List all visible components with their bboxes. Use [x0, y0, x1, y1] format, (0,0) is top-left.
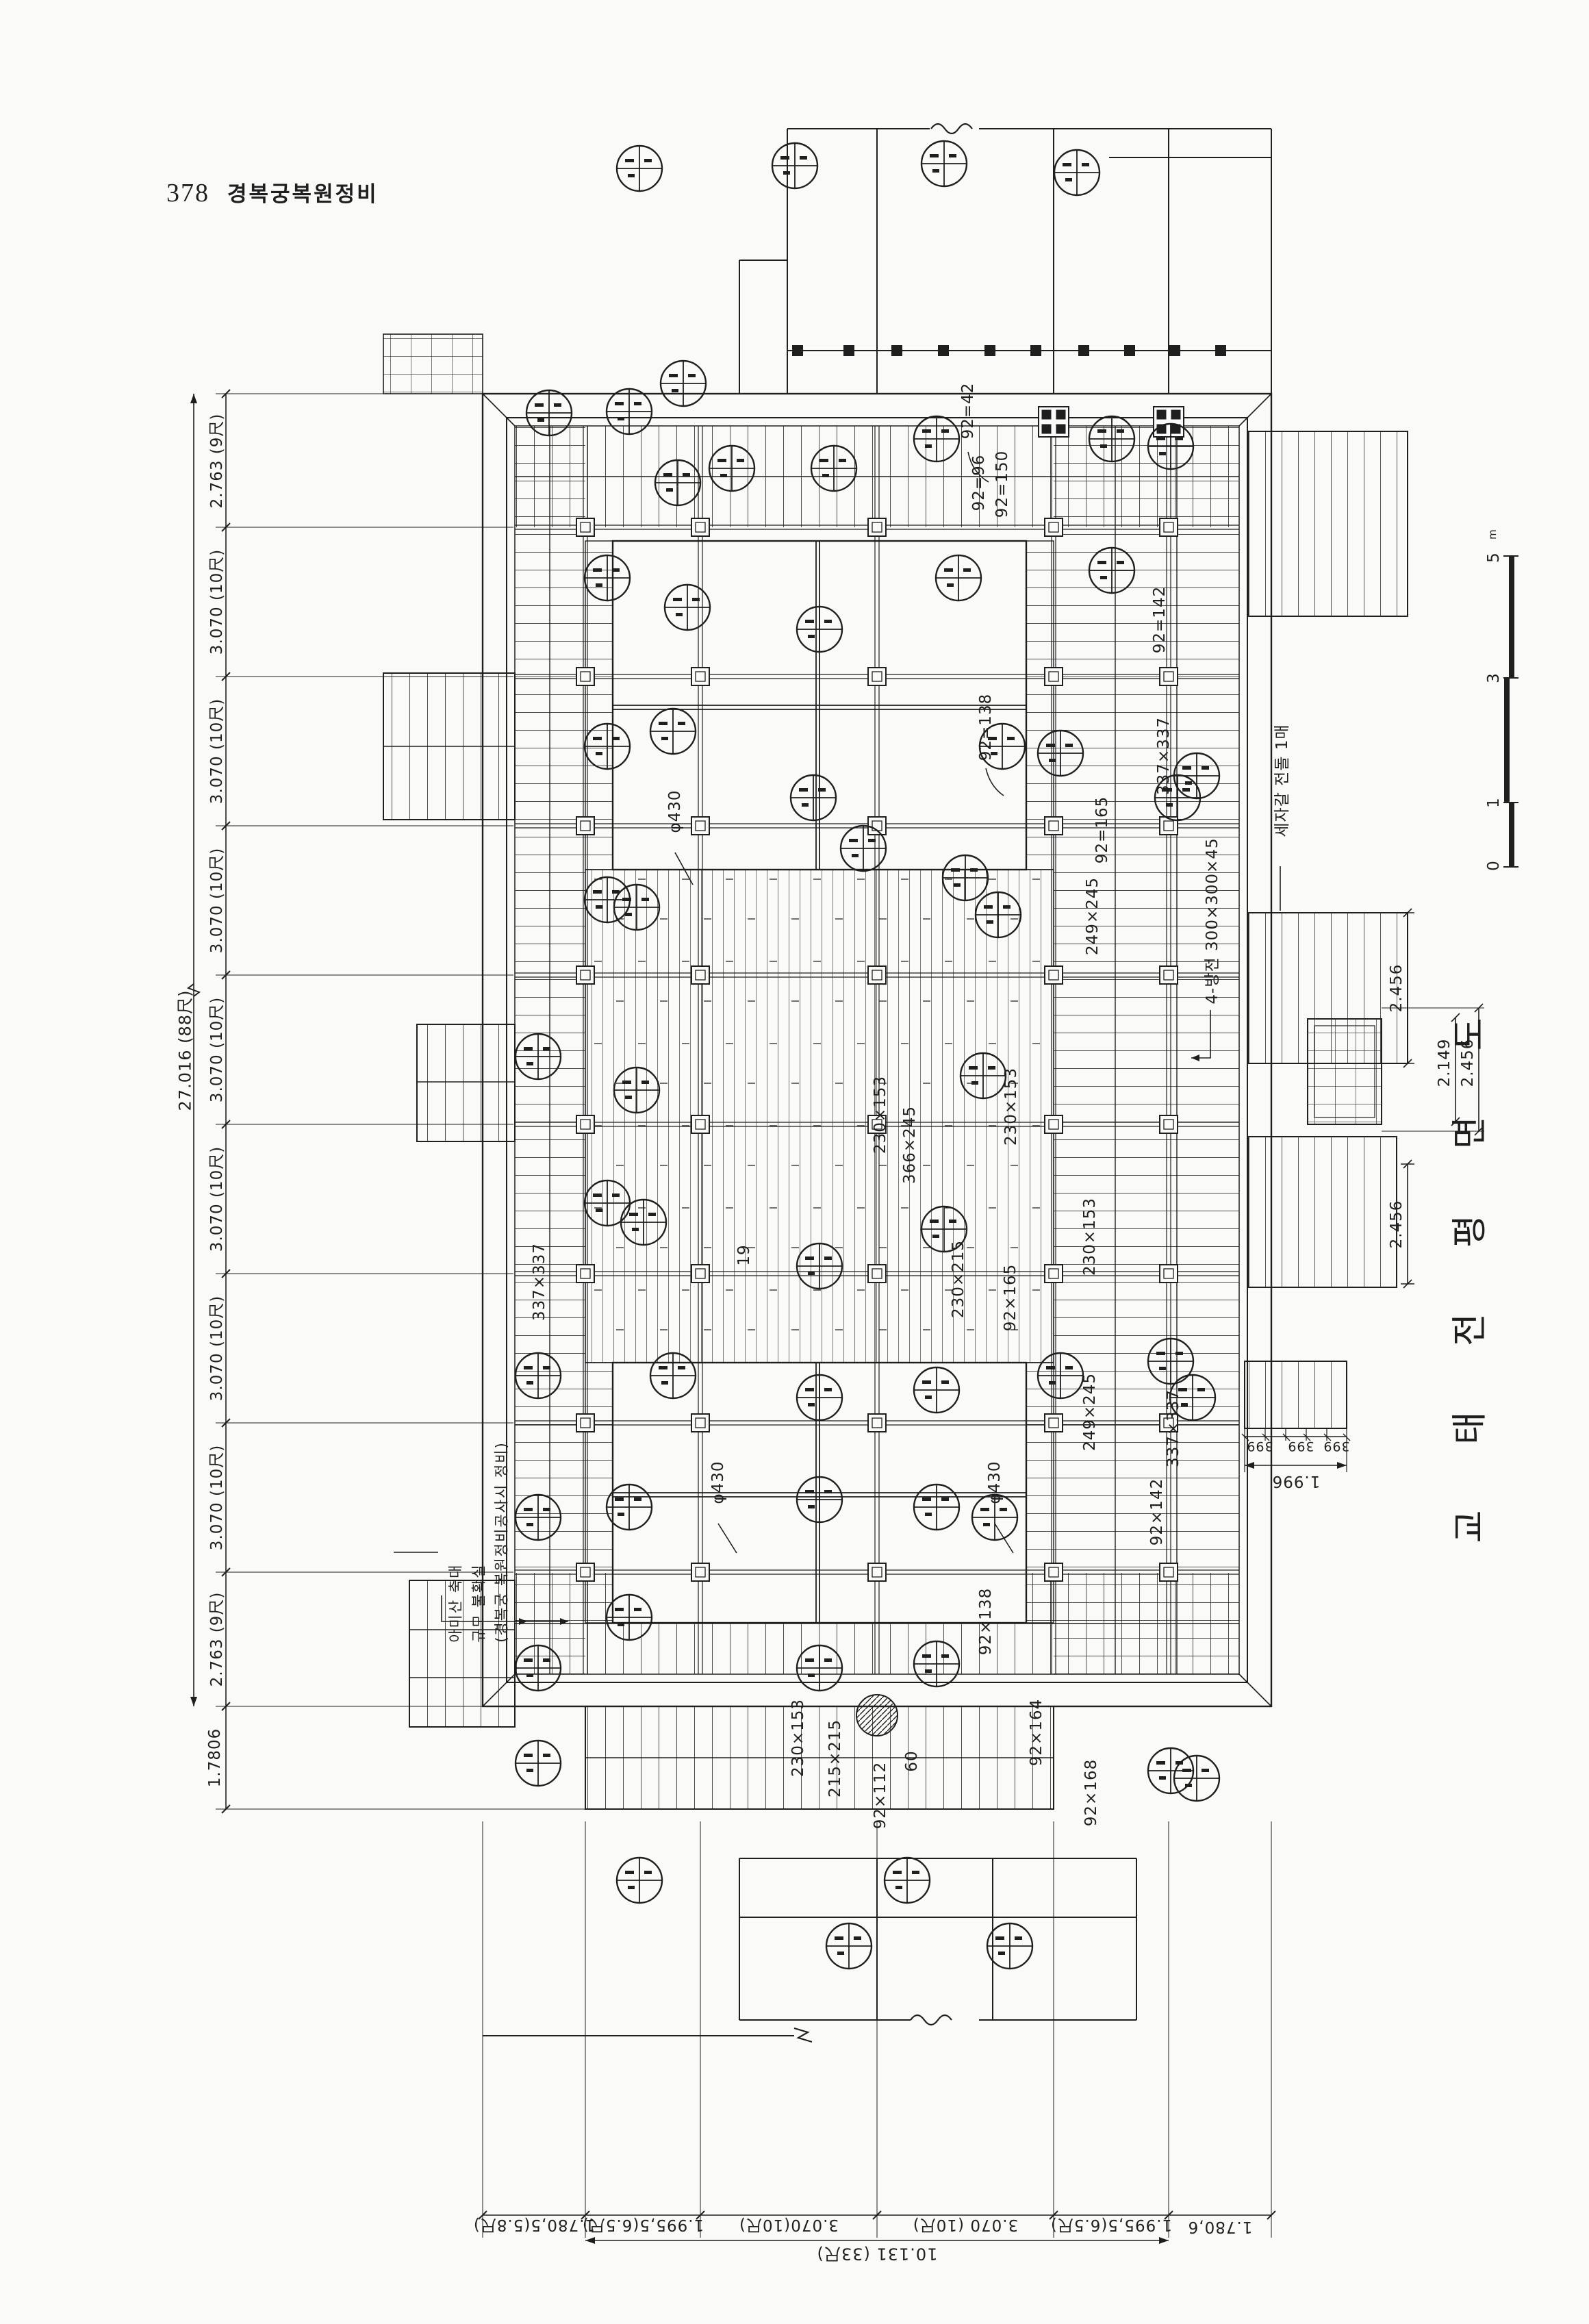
plan-annotation: 아미산 축대 규모 불확실 (경복궁 복원정비공사시 정비): [445, 1441, 514, 1643]
plan-label: 0: [1485, 860, 1503, 871]
grid-bubble: [791, 775, 836, 820]
grid-bubble: [811, 446, 856, 491]
plan-label: 1.7806: [206, 1728, 224, 1787]
grid-bubble: [617, 1858, 662, 1903]
plan-label: 3.070(10尺): [739, 2215, 839, 2238]
plan-label: φ430: [709, 1461, 727, 1504]
adjacent-structure-bottom: [483, 1858, 1136, 2042]
grid-bubble: [516, 1645, 561, 1691]
grid-bubble: [797, 607, 842, 652]
grid-bubble: [607, 1595, 652, 1640]
grid-bubble: [1054, 150, 1099, 195]
plan-label: 60: [903, 1750, 921, 1771]
grid-bubble: [797, 1375, 842, 1420]
grid-bubble: [914, 1641, 959, 1687]
grid-bubble: [1089, 416, 1134, 462]
grid-bubble: [585, 724, 630, 769]
plan-label: m: [1486, 529, 1499, 540]
scale-bar: [1503, 556, 1518, 867]
plan-label: 19: [735, 1244, 753, 1265]
plan-label: 399: [1246, 1439, 1273, 1454]
plan-label: 2.456: [1388, 964, 1406, 1013]
grid-bubble: [1089, 548, 1134, 593]
plan-label: 1.780,6: [1188, 2218, 1253, 2236]
grid-bubble: [1038, 1353, 1083, 1398]
plan-label: 366×245: [901, 1106, 919, 1184]
plan-label: 92=42: [959, 383, 977, 440]
grid-bubble: [914, 1367, 959, 1413]
grid-bubble: [1148, 424, 1193, 469]
break-wave-top: [931, 124, 972, 134]
plan-label: 5: [1485, 552, 1503, 563]
grid-bubble: [516, 1495, 561, 1540]
plan-label: 92=96: [970, 455, 988, 511]
plan-label: 10.131 (33尺): [817, 2244, 938, 2268]
plan-label: 230×153: [872, 1076, 889, 1154]
plan-label: φ430: [666, 790, 684, 833]
plan-label: φ430: [986, 1461, 1004, 1504]
plan-label: 92×168: [1082, 1759, 1100, 1826]
grid-bubble: [841, 826, 886, 871]
grid-bubble: [797, 1645, 842, 1691]
plan-label: 세자갈 전돌 1매: [1269, 724, 1292, 837]
plan-label: 230×215: [950, 1240, 967, 1318]
plan-label: 3.070 (10尺): [203, 549, 227, 655]
break-bolt: [794, 2028, 812, 2042]
plan-label: 92×142: [1148, 1478, 1166, 1545]
plan-label: 92=165: [1093, 796, 1111, 863]
grid-bubble: [709, 446, 754, 491]
plan-label: 92=138: [977, 694, 995, 761]
plan-label: 3.070 (10尺): [203, 1146, 227, 1252]
grid-bubble: [976, 892, 1021, 937]
scanned-book-page: 378 경복궁복원정비: [0, 0, 1589, 2324]
grid-bubble: [987, 1923, 1032, 1969]
grid-bubble: [655, 460, 700, 505]
plan-label: 3.070 (10尺): [913, 2215, 1018, 2238]
plan-label: 92×164: [1028, 1699, 1045, 1766]
plan-label: 249×245: [1084, 877, 1102, 955]
plan-label: 2.149: [1436, 1039, 1453, 1087]
floor-plan-drawing: [0, 0, 1589, 2324]
plan-label: 399: [1323, 1439, 1349, 1454]
grid-bubble: [621, 1200, 666, 1245]
grid-bubble: [614, 885, 659, 930]
plan-label: 1: [1485, 797, 1503, 808]
grid-bubble: [1174, 1756, 1219, 1801]
plan-label: 3: [1485, 672, 1503, 683]
plan-label: 230×153: [1002, 1068, 1020, 1146]
plan-label: 3.070 (10尺): [203, 848, 227, 953]
plan-label: 2.763 (9尺): [203, 1592, 227, 1687]
grid-bubble: [914, 416, 959, 462]
plan-label: 2.763 (9尺): [203, 413, 227, 508]
plan-label: 92×112: [872, 1762, 889, 1829]
plan-label: 92=150: [993, 451, 1011, 518]
break-wave-bottom: [911, 2015, 952, 2025]
plan-label: 92=142: [1151, 586, 1169, 653]
grid-bubble: [921, 141, 967, 186]
grid-bubble: [516, 1353, 561, 1398]
plan-label: 337×337: [1165, 1389, 1182, 1467]
grid-bubble: [1174, 753, 1219, 798]
grid-bubble: [526, 390, 572, 435]
grid-bubble: [826, 1923, 872, 1969]
grid-bubble: [1148, 1339, 1193, 1384]
grid-bubble: [650, 709, 696, 754]
grid-bubble: [617, 146, 662, 191]
plan-label: 1.996: [1272, 1472, 1321, 1490]
plan-label: 337×337: [1155, 717, 1173, 795]
plan-label: 3.070 (10尺): [203, 1445, 227, 1550]
annotation-line: (경복궁 복원정비공사시 정비): [491, 1441, 514, 1643]
plan-label: 92×138: [977, 1588, 995, 1655]
grid-bubble: [614, 1068, 659, 1113]
east-stairs: [1245, 431, 1408, 1428]
plan-label: 2.456: [1459, 1039, 1477, 1087]
plan-label: 2.456: [1388, 1200, 1406, 1249]
plan-label: 1.995,5(6.5尺): [1050, 2215, 1172, 2238]
grid-bubble: [797, 1243, 842, 1289]
grid-bubble: [661, 361, 706, 406]
plan-label: 4-방전 300×300×45: [1199, 837, 1222, 1004]
plan-label: 1.995,5(6.5尺): [582, 2215, 704, 2238]
grid-bubble: [772, 143, 817, 188]
grid-bubble: [665, 585, 710, 630]
grid-bubble: [961, 1053, 1006, 1098]
grid-bubble: [1038, 731, 1083, 776]
plan-label: 1.780,5(5.8尺): [473, 2215, 595, 2238]
plan-label: 92×165: [1002, 1264, 1019, 1331]
plan-label: 337×337: [531, 1243, 548, 1321]
plan-label: 3.070 (10尺): [203, 1296, 227, 1401]
grid-bubble: [585, 1180, 630, 1226]
plan-label: 230×153: [1081, 1198, 1099, 1276]
plan-label: 27.016 (88尺): [172, 990, 196, 1111]
annotation-line: 규모 불확실: [468, 1441, 491, 1643]
adjacent-structure-top: [739, 124, 1271, 394]
grid-bubble: [516, 1034, 561, 1079]
grid-bubble: [607, 389, 652, 434]
grid-bubble: [936, 555, 981, 601]
plan-label: 3.070 (10尺): [203, 997, 227, 1102]
grid-bubble: [797, 1477, 842, 1522]
brick-pavement-detail: [1308, 1019, 1382, 1124]
grid-bubble: [885, 1858, 930, 1903]
front-porch: [585, 1706, 1054, 1809]
plan-label: 3.070 (10尺): [203, 698, 227, 804]
plan-label: 215×215: [826, 1719, 844, 1797]
grid-bubble: [914, 1485, 959, 1530]
grid-bubble: [516, 1741, 561, 1786]
grid-bubble: [607, 1485, 652, 1530]
plan-label: 399: [1287, 1439, 1314, 1454]
grid-bubble: [585, 555, 630, 601]
annotation-line: 아미산 축대: [445, 1441, 468, 1643]
plan-label: 249×245: [1081, 1373, 1099, 1451]
grid-bubble: [943, 855, 988, 900]
plan-label: 230×153: [789, 1699, 807, 1777]
grid-bubble: [650, 1353, 696, 1398]
